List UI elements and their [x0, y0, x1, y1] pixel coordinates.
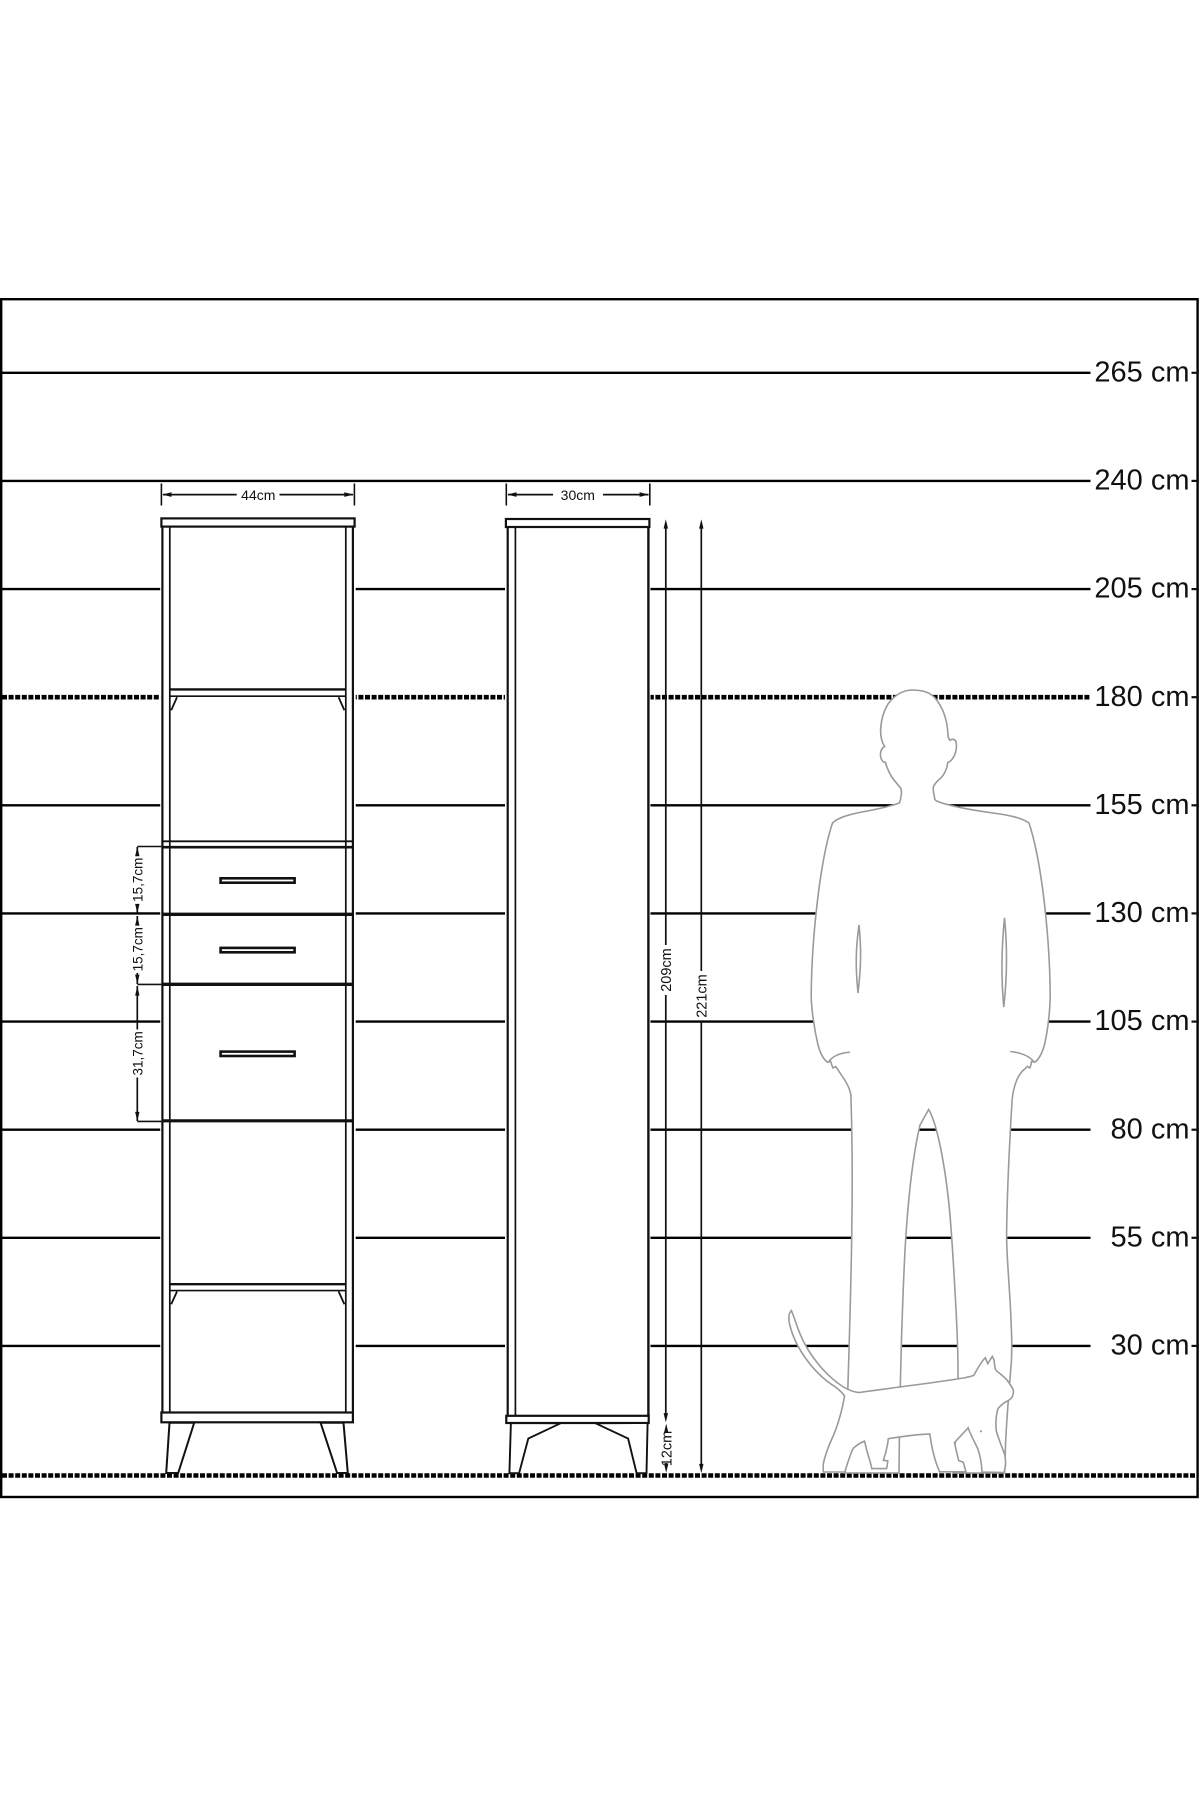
svg-text:44cm: 44cm — [241, 487, 275, 503]
svg-text:30 cm: 30 cm — [1111, 1330, 1190, 1362]
svg-text:240 cm: 240 cm — [1094, 465, 1189, 497]
svg-text:105 cm: 105 cm — [1094, 1005, 1189, 1037]
svg-text:30cm: 30cm — [561, 487, 595, 503]
svg-text:15,7cm: 15,7cm — [131, 858, 146, 902]
svg-text:55 cm: 55 cm — [1111, 1221, 1190, 1253]
svg-text:180 cm: 180 cm — [1094, 681, 1189, 713]
svg-text:15,7cm: 15,7cm — [131, 927, 146, 971]
svg-text:31,7cm: 31,7cm — [130, 1031, 145, 1075]
svg-text:221cm: 221cm — [695, 974, 711, 1018]
svg-text:80 cm: 80 cm — [1111, 1113, 1190, 1145]
svg-text:12cm: 12cm — [659, 1431, 675, 1466]
svg-text:209cm: 209cm — [659, 948, 675, 992]
svg-text:205 cm: 205 cm — [1094, 573, 1189, 605]
svg-text:265 cm: 265 cm — [1094, 356, 1189, 388]
svg-text:155 cm: 155 cm — [1094, 789, 1189, 821]
svg-text:130 cm: 130 cm — [1094, 897, 1189, 929]
